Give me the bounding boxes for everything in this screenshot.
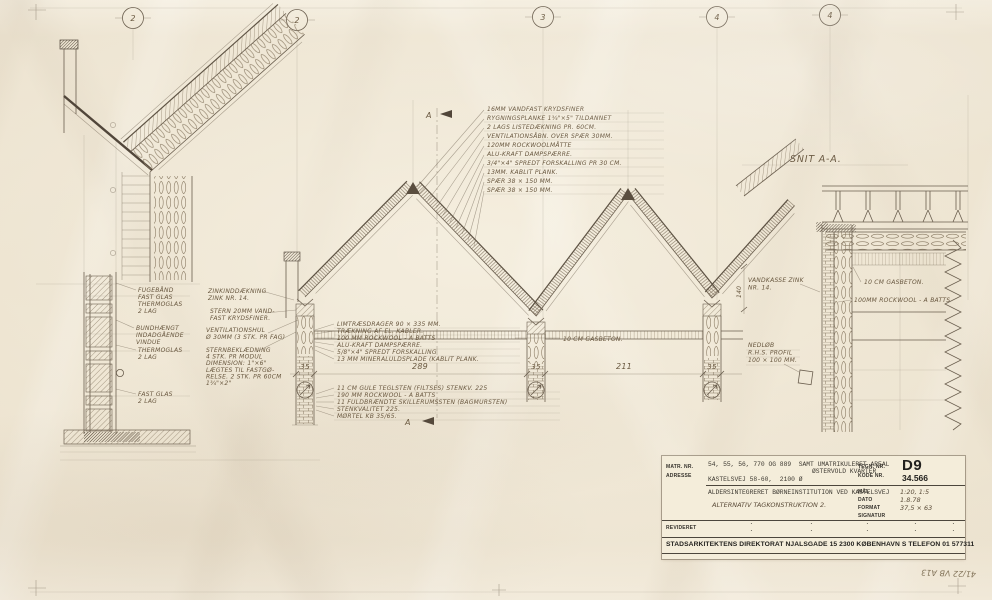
annotation-roof-layers: 16MM VANDFAST KRYDSFINERRYGNINGSPLANKE 1… [486, 106, 622, 194]
window-annotations: FUGEBÅNDFAST GLASTHERMOGLAS2 LAG BUNDHÆN… [116, 283, 184, 405]
sill-section [60, 430, 196, 452]
snit-gasbeton-deck [852, 253, 946, 400]
grid-bubble-4: 4 [699, 7, 735, 28]
matr-label: MATR. NR. [666, 464, 693, 470]
signatur-label: SIGNATUR [858, 513, 885, 519]
office-footer: STADSARKITEKTENS DIREKTORAT NJALSGADE 15… [666, 541, 963, 548]
window-mullion-section [84, 272, 124, 434]
annotation-snit-gasbeton: 10 CM GASBETON. [864, 279, 924, 286]
revideret-label: REVIDERET [666, 525, 696, 531]
revision-dot: · [952, 529, 955, 533]
dim-bay-1: 289 [412, 362, 428, 371]
dimension-line: 35 289 35 211 35 [290, 362, 742, 377]
roof-buildup-band [121, 1, 307, 175]
format-label: FORMAT [858, 505, 880, 511]
revision-dot: · [866, 529, 869, 533]
section-letter-bottom: A [404, 418, 411, 427]
code-number: 34.566 [902, 473, 928, 483]
rockwool-zigzag [945, 240, 961, 430]
annotation-vandkasse: VANDKASSE ZINKNR. 14. [748, 277, 805, 292]
kode-label: KODE NR. [858, 473, 884, 479]
drawing-number: D9 [902, 457, 922, 474]
annotation-zinkinddaekning: ZINKINDDÆKNINGZINK NR. 14. [207, 288, 267, 302]
grid-bubble-3: 3 [525, 7, 561, 28]
grid-bubble-label: 2 [130, 14, 135, 23]
grid-bubbles: 2 2 3 4 4 [115, 5, 848, 31]
snit-title: SNIT A-A. [790, 154, 842, 165]
annotation-fugeband: FUGEBÅNDFAST GLASTHERMOGLAS2 LAG [138, 287, 182, 315]
window-handle [116, 369, 123, 376]
annotation-stern-krydsfiner: STERN 20MM VAND-FAST KRYDSFINER. [210, 308, 275, 322]
grid-bubble-5: 4 [812, 5, 848, 26]
valley-column-1 [292, 299, 318, 425]
revision-dot: · [810, 529, 813, 533]
roof-slope [624, 188, 719, 301]
title-block: MATR. NR. ADRESSE 54, 55, 56, 770 OG 889… [662, 456, 965, 559]
divider [662, 520, 965, 521]
insulated-wall [122, 172, 192, 282]
rhs-profile-symbol [798, 370, 813, 385]
left-valley-detail-drawing [60, 1, 307, 452]
grid-bubble-label: 4 [714, 13, 719, 22]
dim-col-width: 35 [531, 363, 541, 371]
revision-dot: · [750, 529, 753, 533]
annotation-gasbeton: 10 CM GASBETON. [563, 336, 623, 343]
tegn-label: TEGN. NR. [858, 464, 885, 470]
stern-annotations: ZINKINDDÆKNINGZINK NR. 14. STERN 20MM VA… [205, 288, 298, 387]
dato-label: DATO [858, 497, 873, 503]
maal-value: 1:20, 1:5 [900, 488, 929, 496]
maal-label: MÅL [858, 489, 869, 495]
annotation-thermoglas: THERMOGLAS2 LAG [138, 347, 182, 361]
valley-column-2 [527, 318, 545, 402]
format-value: 37,5 × 63 [900, 504, 932, 512]
roof-slope [529, 188, 632, 319]
annotation-snit-rockwool: 100MM ROCKWOOL - A BATTS [854, 297, 950, 304]
divider [662, 553, 965, 554]
annotation-nedlob: NEDLØBR.H.S. PROFIL100 × 100 MM. [748, 342, 797, 364]
annotation-masonry-wall: 11 CM GULE TEGLSTEN (FILTSES) STENKV. 22… [337, 385, 507, 420]
beam-annotations: LIMTRÆSDRAGER 90 × 335 MM.TRÆKNING AF EL… [315, 321, 520, 363]
section-letter-top: A [425, 111, 432, 120]
drawing-subject: ALTERNATIV TAGKONSTRUKTION 2. [712, 501, 826, 509]
annotation-sternbeklaedning: STERNBEKLÆDNING4 STK. PR MODULDIMENSION:… [206, 347, 282, 387]
revision-dot: · [914, 529, 917, 533]
adresse-label: ADRESSE [666, 473, 692, 479]
dim-140: 140 [736, 286, 743, 298]
dim-bay-2: 211 [616, 362, 632, 371]
masonry-annotations: 11 CM GULE TEGLSTEN (FILTSES) STENKV. 22… [316, 385, 560, 420]
roof-slope [409, 182, 543, 320]
dim-col-width: 35 [707, 363, 717, 371]
adresse-value: KASTELSVEJ 58-60, 2100 Ø [708, 476, 802, 483]
divider-heavy [662, 537, 965, 538]
annotation-ventilationshul: VENTILATIONSHULØ 30MM (3 STK. PR FAG) [205, 327, 285, 341]
grid-bubble-label: 2 [294, 16, 299, 25]
dato-value: 1.8.78 [900, 496, 921, 504]
valley-column-3 [703, 300, 721, 402]
fascia-cap [60, 40, 78, 49]
grid-bubble-label: 3 [540, 13, 545, 22]
drawing-sheet: { "sheet": { "grid_bubbles": { "b1": "2"… [0, 0, 992, 600]
section-line-a-a: A A [404, 108, 452, 427]
grid-bubble-1: 2 [115, 8, 151, 29]
roof-slope [299, 181, 417, 300]
snit-vertical-dim: 140 [736, 264, 747, 314]
annotation-fast-glas: FAST GLAS2 LAG [138, 391, 173, 405]
snit-wall-section [818, 224, 856, 432]
dim-col-width: 35 [300, 363, 310, 371]
grid-bubble-label: 4 [827, 11, 832, 20]
annotation-bundhaengt-vindue: BUNDHÆNGTINDADGÅENDEVINDUE [136, 325, 184, 346]
divider [706, 485, 965, 486]
